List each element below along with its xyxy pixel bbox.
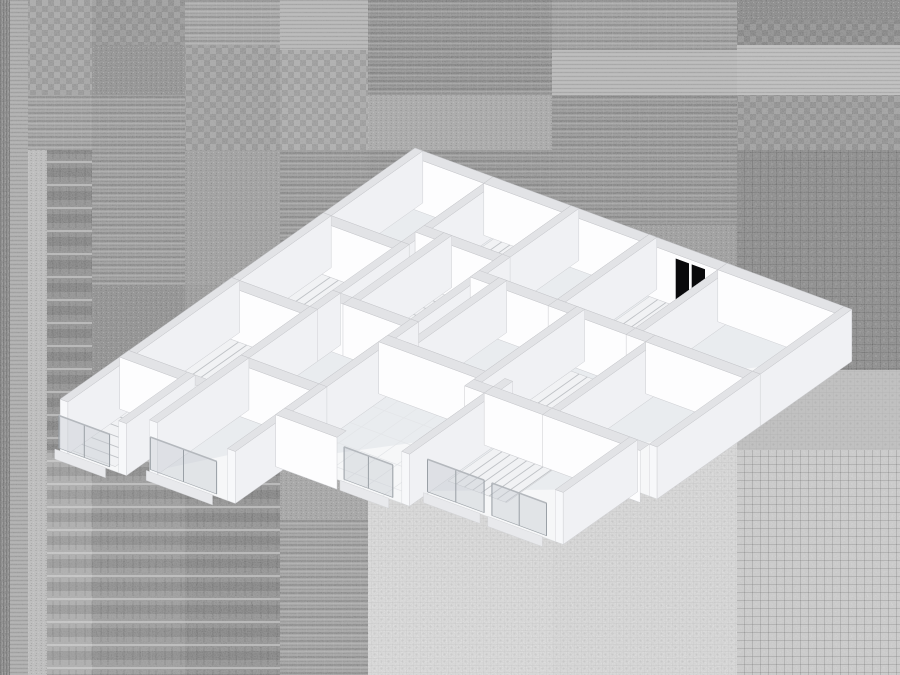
wall-cap — [119, 421, 127, 476]
artwork-canvas — [0, 0, 900, 675]
wall-cap — [649, 444, 657, 499]
wall-cap — [555, 490, 563, 545]
scene-svg — [0, 0, 900, 675]
wall-cap — [228, 449, 236, 504]
wall-cap — [402, 451, 410, 506]
